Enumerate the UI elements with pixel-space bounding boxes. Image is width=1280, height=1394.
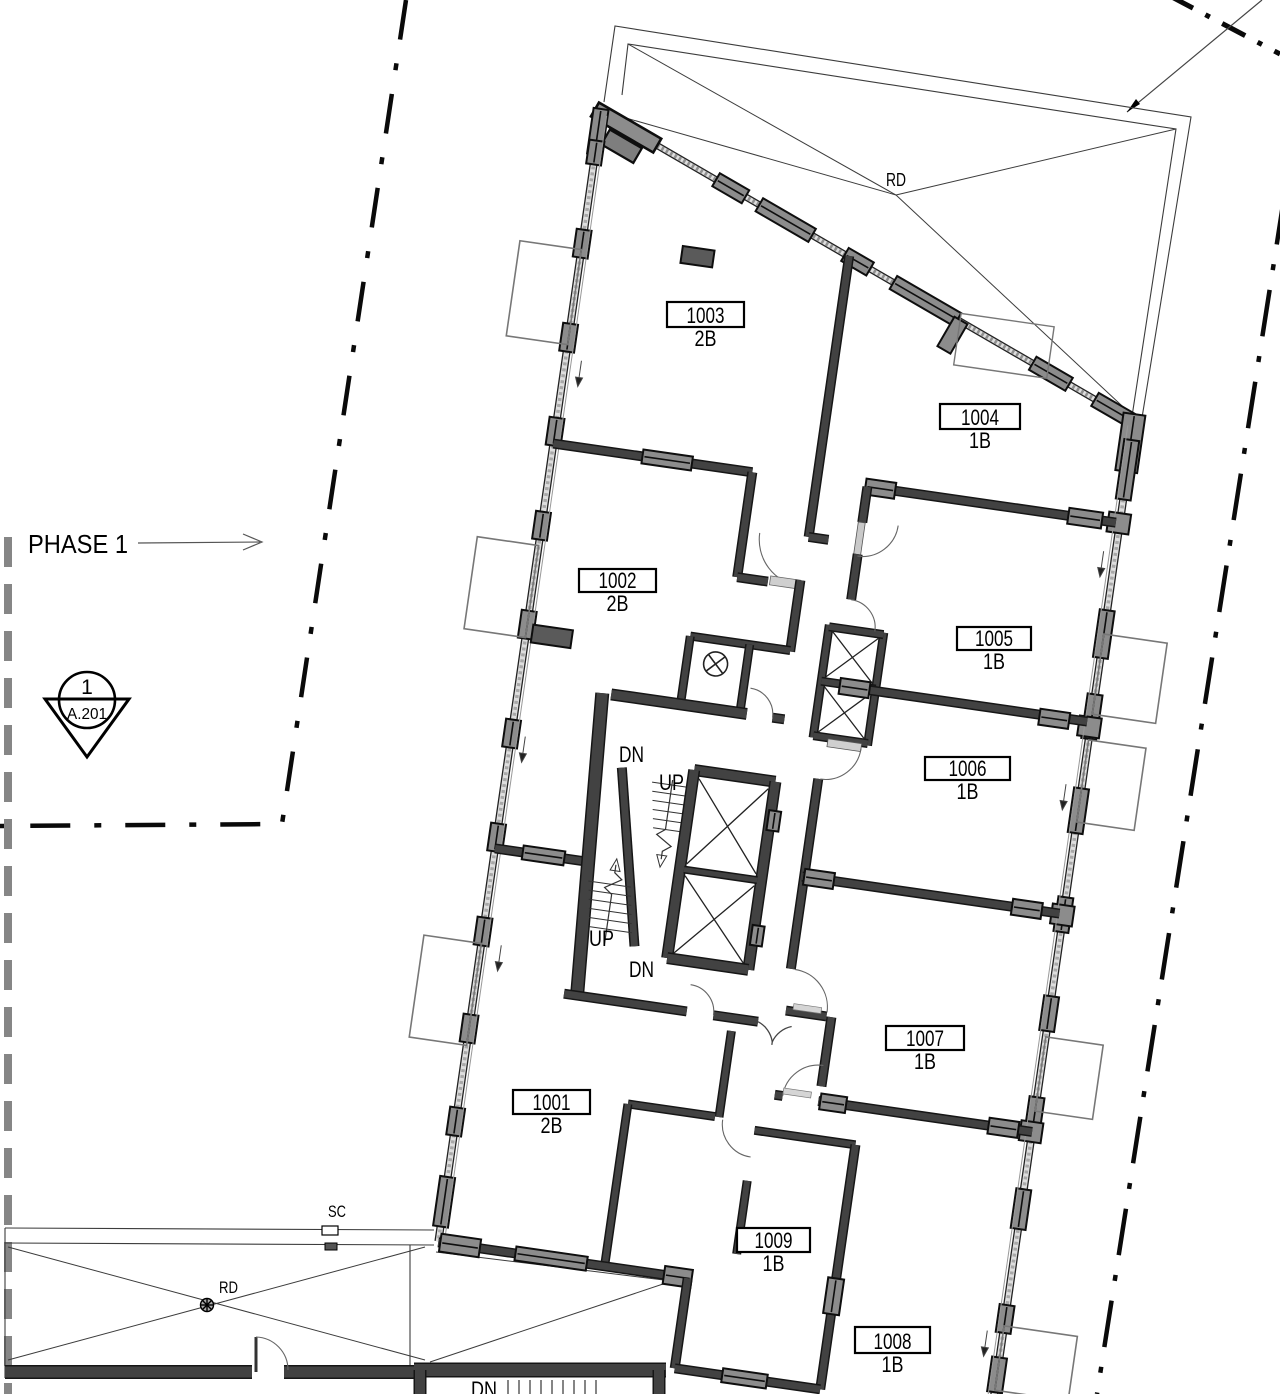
svg-text:1: 1 xyxy=(81,676,93,699)
svg-text:1003: 1003 xyxy=(687,303,725,328)
svg-text:1008: 1008 xyxy=(874,1329,912,1354)
svg-text:2B: 2B xyxy=(541,1113,563,1138)
svg-text:1006: 1006 xyxy=(949,756,987,781)
svg-text:1009: 1009 xyxy=(755,1228,793,1253)
svg-text:UP: UP xyxy=(659,770,684,795)
svg-text:A.201: A.201 xyxy=(67,706,107,723)
svg-text:DN: DN xyxy=(619,742,644,767)
svg-text:RD: RD xyxy=(886,170,906,190)
svg-text:UP: UP xyxy=(589,926,614,951)
svg-text:1001: 1001 xyxy=(533,1090,571,1115)
svg-text:1002: 1002 xyxy=(599,568,637,593)
svg-text:1004: 1004 xyxy=(961,405,999,430)
svg-text:1007: 1007 xyxy=(906,1026,944,1051)
svg-text:1B: 1B xyxy=(983,649,1005,674)
svg-text:1B: 1B xyxy=(969,428,991,453)
svg-text:1B: 1B xyxy=(882,1352,904,1377)
svg-text:SC: SC xyxy=(328,1202,346,1221)
svg-text:PHASE 1: PHASE 1 xyxy=(28,529,128,559)
svg-text:DN: DN xyxy=(471,1377,497,1394)
svg-text:DN: DN xyxy=(629,957,654,982)
svg-text:1005: 1005 xyxy=(975,626,1013,651)
svg-text:RD: RD xyxy=(219,1278,238,1297)
svg-text:1B: 1B xyxy=(957,779,979,804)
svg-text:2B: 2B xyxy=(695,326,717,351)
svg-text:1B: 1B xyxy=(763,1251,785,1276)
svg-text:1B: 1B xyxy=(914,1049,936,1074)
svg-text:2B: 2B xyxy=(607,591,629,616)
